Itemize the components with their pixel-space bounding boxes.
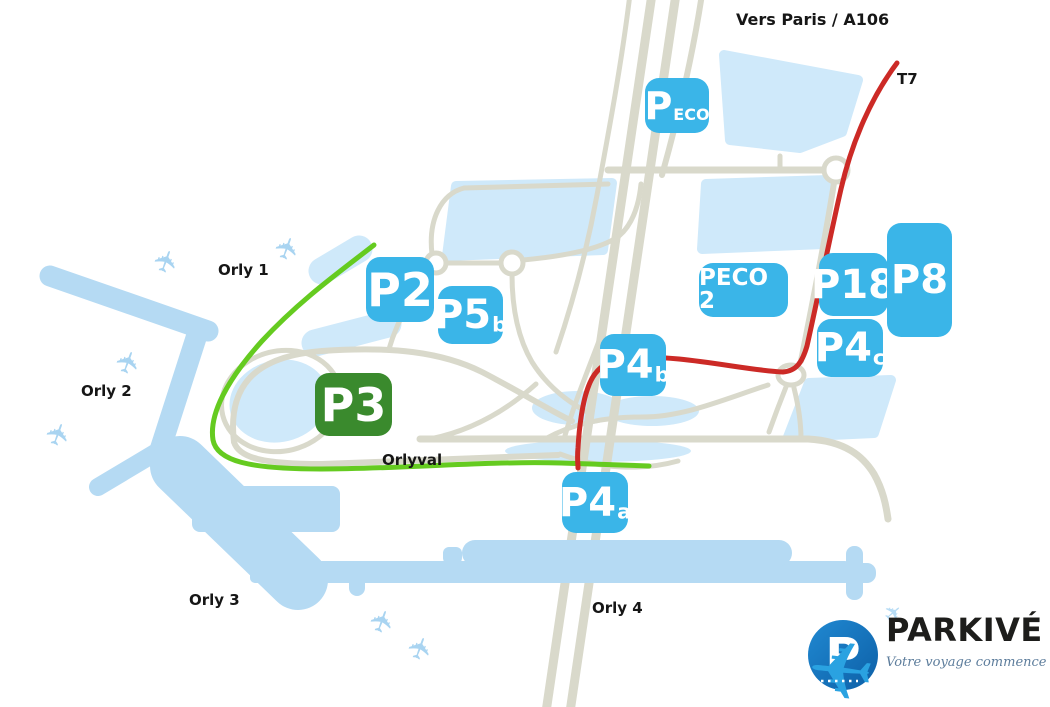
parking-area — [788, 380, 891, 437]
parking-badge-subscript: c — [873, 347, 885, 368]
airplane-icon: ✈ — [108, 345, 149, 381]
road — [769, 387, 786, 432]
parking-badge-p18[interactable]: P18 — [819, 253, 888, 316]
terminal-orly-4-east-pier — [838, 563, 876, 583]
parking-badge-label: P2 — [367, 267, 433, 313]
parking-badge-p8[interactable]: P8 — [887, 223, 952, 337]
brand-tagline: Votre voyage commence bien! — [886, 655, 1050, 670]
terminal-orly-1-2-piers — [160, 338, 196, 450]
parking-badge-subscript: b — [492, 314, 507, 335]
roundabout — [501, 252, 523, 274]
parkive-logo-text: PARKIVÉ Votre voyage commence bien! — [886, 611, 1050, 670]
parking-area — [724, 55, 858, 148]
parking-badge-peco[interactable]: PECO — [645, 78, 709, 133]
terminal-orly-4-building — [462, 540, 792, 566]
road — [808, 439, 888, 519]
parking-badge-p2[interactable]: P2 — [366, 257, 434, 322]
parking-badge-label: P4 — [815, 328, 872, 368]
parking-badge-label: PECO 2 — [699, 267, 788, 313]
terminal-gate-pin — [443, 547, 462, 564]
airplane-icon: ✈ — [38, 417, 79, 453]
brand-name: PARKIVÉ — [886, 611, 1050, 649]
pond — [315, 324, 388, 343]
parking-badge-label: P8 — [891, 260, 948, 300]
parking-badge-label: P5 — [434, 295, 491, 335]
parking-badge-label: P3 — [321, 382, 387, 428]
parking-badge-label: P18 — [811, 265, 896, 305]
parkive-logo[interactable]: P ✈ ✈ PARKIVÉ Votre voyage commence bien… — [786, 595, 1050, 707]
parking-badge-subscript: a — [617, 501, 631, 522]
parking-badge-label: P4 — [596, 345, 653, 385]
parking-badge-label: P — [644, 87, 672, 125]
parking-badge-subscript: b — [655, 364, 670, 385]
terminal-label-orly-1: Orly 1 — [218, 261, 269, 279]
parking-badge-p5b[interactable]: P5b — [438, 286, 503, 344]
orly-parking-map: ✈ ✈ ✈ ✈ ✈ ✈ Vers Paris / A106 T7 Orly 1 … — [0, 0, 1050, 707]
parking-badge-p4b[interactable]: P4b — [600, 334, 666, 396]
terminal-orly-3-building — [192, 486, 340, 532]
airplane-icon: ✈ — [267, 231, 308, 267]
direction-label-paris-a106: Vers Paris / A106 — [736, 10, 889, 29]
parking-badge-p4a[interactable]: P4a — [562, 472, 628, 533]
parking-badge-p3[interactable]: P3 — [315, 373, 392, 436]
parking-badge-subscript: ECO — [673, 106, 709, 122]
tram-t7-label: T7 — [897, 70, 918, 88]
parking-badge-label: P4 — [559, 483, 616, 523]
terminal-orly-1-2-piers — [50, 276, 208, 331]
terminal-label-orly-2: Orly 2 — [81, 382, 132, 400]
logo-airplane-icon: ✈ — [803, 622, 879, 707]
terminal-label-orly-4: Orly 4 — [592, 599, 643, 617]
highway-ramp — [556, 0, 630, 352]
parking-badge-peco2[interactable]: PECO 2 — [699, 263, 788, 317]
parking-area — [702, 180, 828, 249]
airplane-icon: ✈ — [362, 604, 403, 640]
terminal-label-orly-3: Orly 3 — [189, 591, 240, 609]
parking-badge-p4c[interactable]: P4c — [817, 319, 883, 377]
airplane-icon: ✈ — [400, 631, 441, 667]
airplane-icon: ✈ — [146, 244, 187, 280]
orlyval-label: Orlyval — [382, 451, 442, 469]
